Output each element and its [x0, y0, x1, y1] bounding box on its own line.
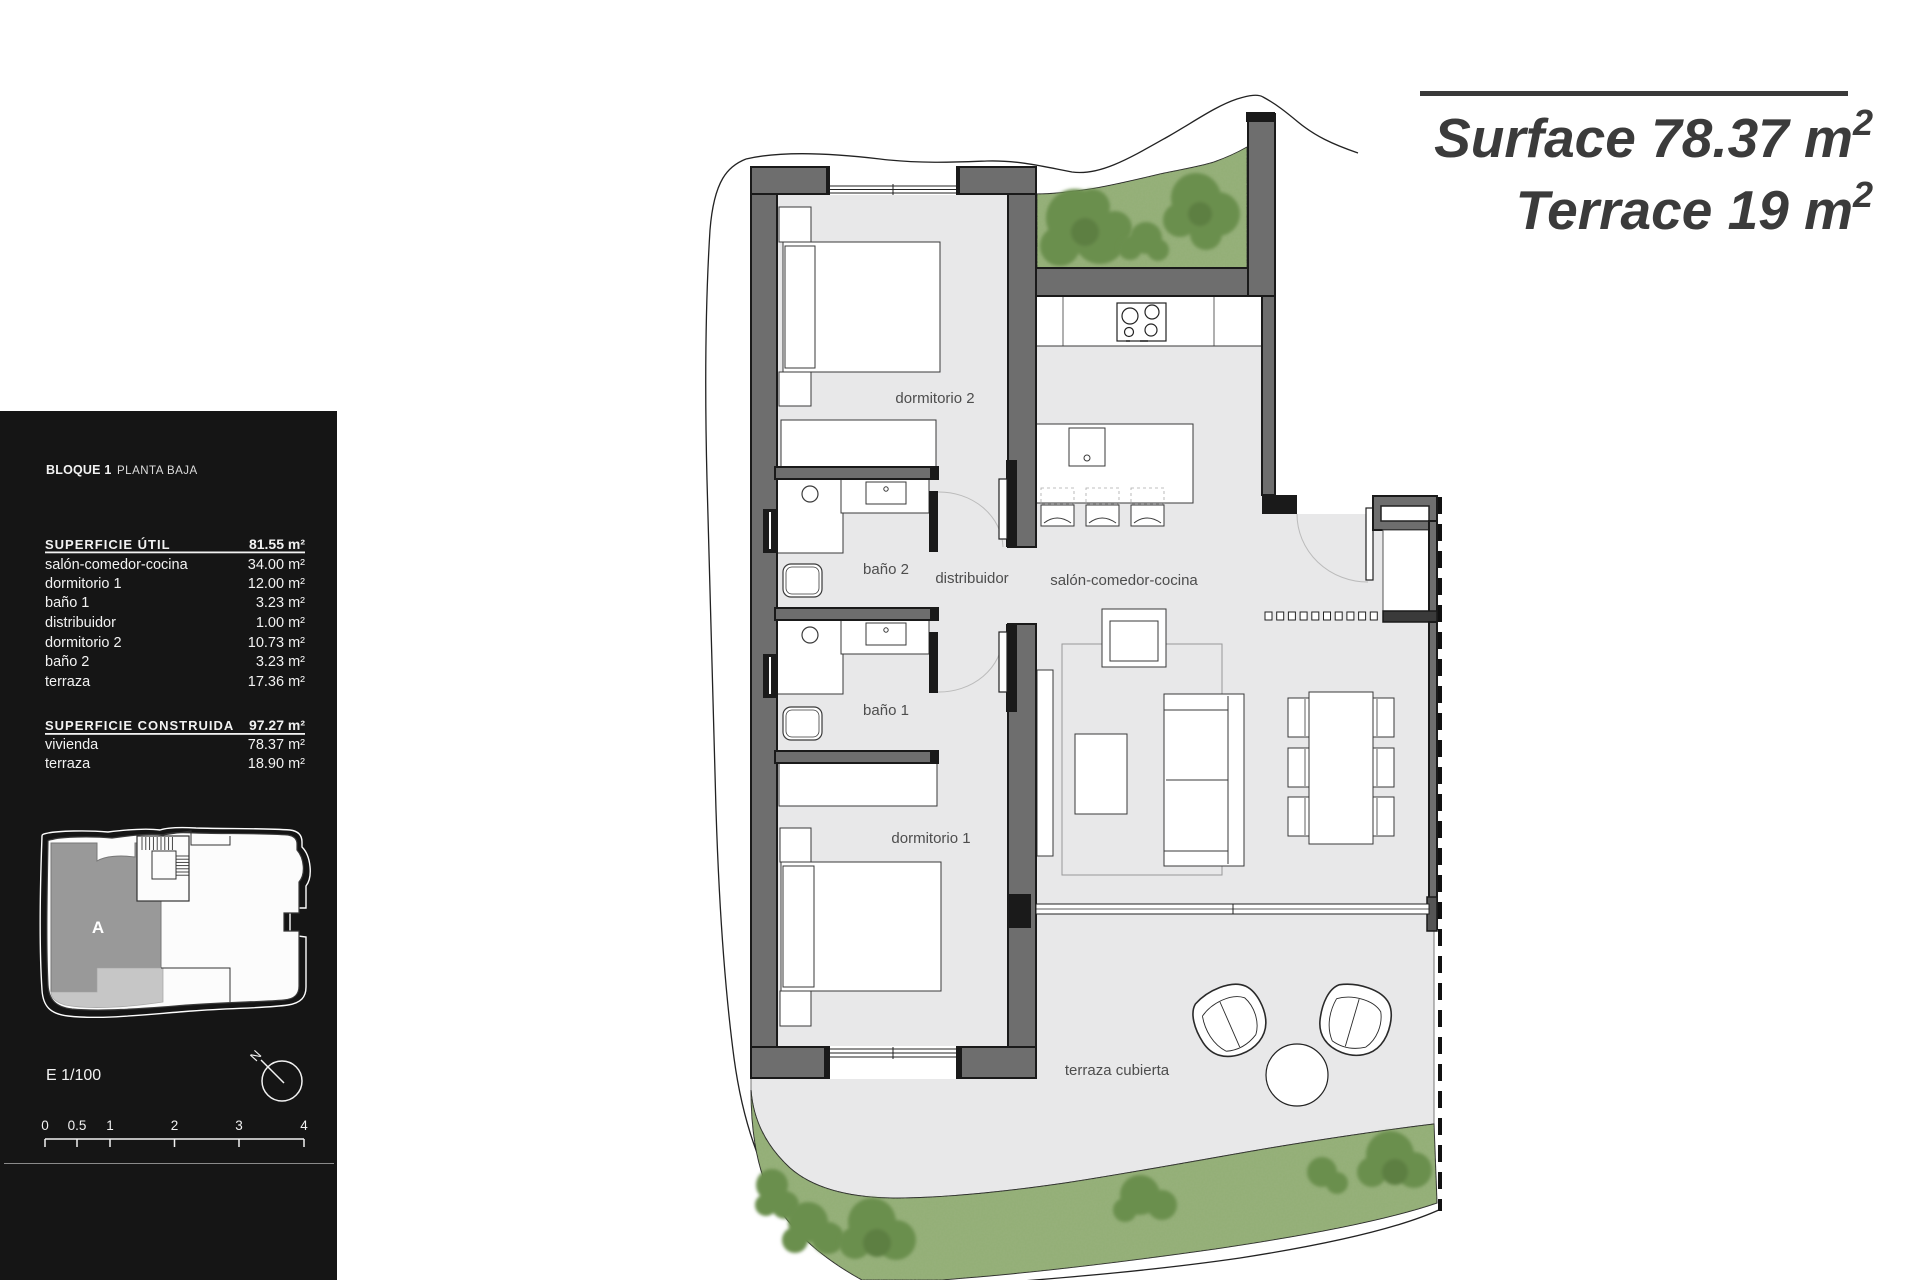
svg-text:1.00 m²: 1.00 m² [256, 615, 305, 631]
svg-text:2: 2 [171, 1118, 179, 1133]
svg-text:0: 0 [41, 1118, 49, 1133]
svg-text:distribuidor: distribuidor [935, 570, 1008, 587]
svg-text:dormitorio 2: dormitorio 2 [895, 390, 974, 407]
svg-text:34.00 m²: 34.00 m² [248, 557, 305, 573]
svg-text:3: 3 [235, 1118, 243, 1133]
svg-text:E 1/100: E 1/100 [46, 1067, 101, 1084]
svg-text:17.36 m²: 17.36 m² [248, 674, 305, 690]
svg-text:baño 2: baño 2 [45, 654, 89, 670]
svg-text:3.23 m²: 3.23 m² [256, 654, 305, 670]
svg-text:Surface 78.37 m2: Surface 78.37 m2 [1434, 102, 1873, 169]
svg-text:4: 4 [300, 1118, 308, 1133]
svg-text:baño 2: baño 2 [863, 561, 909, 578]
svg-text:12.00 m²: 12.00 m² [248, 576, 305, 592]
svg-text:distribuidor: distribuidor [45, 615, 116, 631]
svg-text:dormitorio 1: dormitorio 1 [45, 576, 122, 592]
svg-text:salón-comedor-cocina: salón-comedor-cocina [1050, 572, 1198, 589]
svg-text:vivienda: vivienda [45, 737, 99, 753]
svg-text:18.90 m²: 18.90 m² [248, 756, 305, 772]
svg-text:3.23 m²: 3.23 m² [256, 595, 305, 611]
svg-text:terraza: terraza [45, 756, 91, 772]
svg-text:salón-comedor-cocina: salón-comedor-cocina [45, 557, 189, 573]
svg-text:78.37 m²: 78.37 m² [248, 737, 305, 753]
svg-text:0.5: 0.5 [68, 1118, 87, 1133]
svg-text:10.73 m²: 10.73 m² [248, 635, 305, 651]
svg-text:SUPERFICIE CONSTRUIDA: SUPERFICIE CONSTRUIDA [45, 718, 234, 733]
svg-text:97.27 m²: 97.27 m² [249, 717, 305, 733]
svg-text:A: A [92, 918, 104, 937]
svg-text:baño 1: baño 1 [863, 702, 909, 719]
svg-text:baño 1: baño 1 [45, 595, 89, 611]
svg-text:dormitorio 2: dormitorio 2 [45, 635, 122, 651]
svg-text:Terrace 19 m2: Terrace 19 m2 [1516, 174, 1873, 241]
svg-text:1: 1 [106, 1118, 114, 1133]
svg-text:BLOQUE 1: BLOQUE 1 [46, 463, 112, 477]
svg-text:81.55 m²: 81.55 m² [249, 536, 305, 552]
svg-text:terraza cubierta: terraza cubierta [1065, 1062, 1170, 1079]
svg-text:PLANTA BAJA: PLANTA BAJA [117, 465, 198, 477]
svg-text:SUPERFICIE ÚTIL: SUPERFICIE ÚTIL [45, 537, 171, 552]
svg-text:dormitorio 1: dormitorio 1 [891, 830, 970, 847]
svg-text:terraza: terraza [45, 674, 91, 690]
